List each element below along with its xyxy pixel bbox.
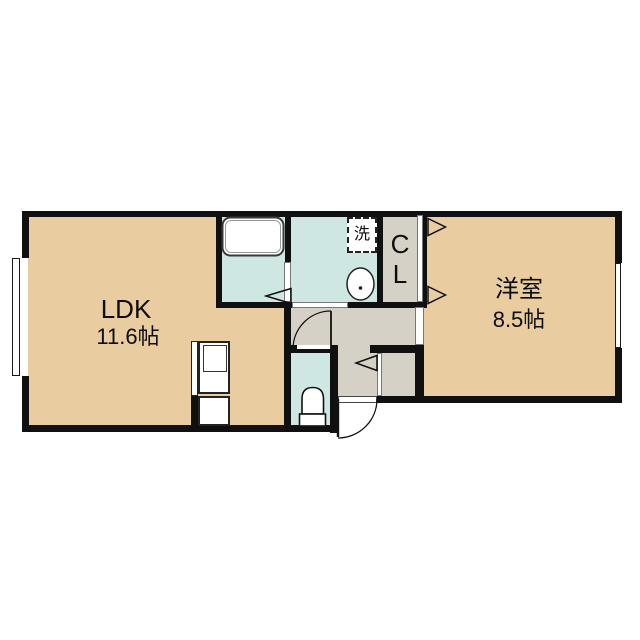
ldk-size-label: 11.6帖 — [96, 326, 159, 348]
cl-door-arrow-bottom-icon — [428, 287, 446, 304]
cl-letter-top: C — [391, 231, 410, 257]
lower-closet-door-arrow-icon — [356, 356, 377, 371]
bathtub — [223, 218, 284, 256]
western-size-label: 8.5帖 — [493, 309, 546, 331]
sink-drain — [359, 286, 363, 290]
floor-plan: LDK 11.6帖 洋室 8.5帖 C L 洗 — [0, 0, 640, 640]
toilet-bowl — [302, 388, 324, 415]
western-room-label: 洋室 — [495, 278, 543, 302]
toilet-tank — [300, 414, 326, 426]
bathroom-door-arrow-icon — [266, 289, 291, 304]
washer-label: 洗 — [354, 227, 370, 243]
cl-door-arrow-top-icon — [428, 219, 446, 236]
ldk-room-label: LDK — [101, 296, 152, 322]
sink-basin — [347, 268, 374, 300]
entry-door-arc — [338, 399, 377, 438]
toilet-door-arc — [293, 311, 331, 349]
cl-letter-bottom: L — [393, 261, 407, 287]
